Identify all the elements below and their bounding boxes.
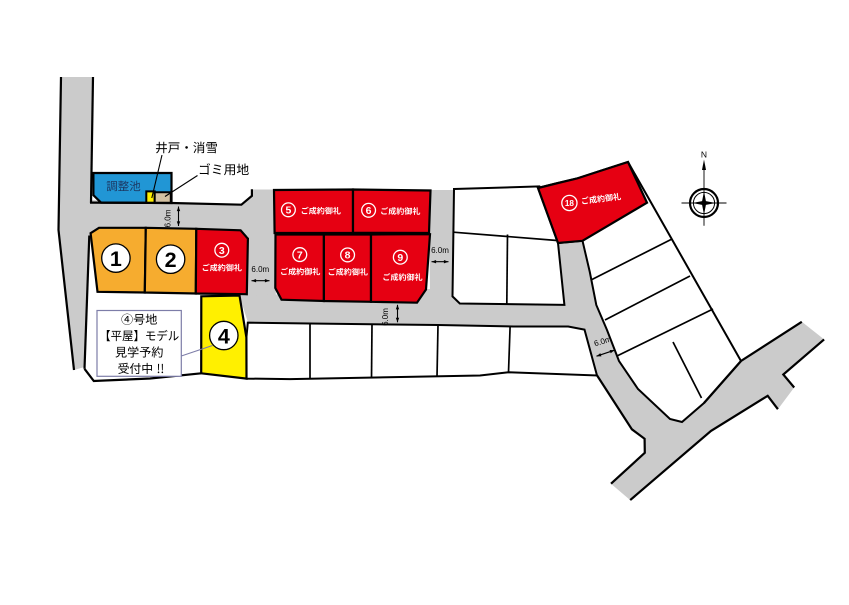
svg-text:6.0m: 6.0m — [164, 209, 173, 227]
svg-text:3: 3 — [219, 245, 225, 257]
svg-text:6.0m: 6.0m — [381, 308, 390, 326]
svg-text:9: 9 — [397, 252, 403, 264]
svg-text:1: 1 — [110, 247, 122, 271]
svg-text:18: 18 — [565, 199, 575, 208]
svg-text:6: 6 — [366, 205, 372, 217]
svg-text:5: 5 — [285, 205, 291, 217]
svg-text:4: 4 — [218, 324, 230, 348]
svg-text:2: 2 — [165, 248, 177, 272]
svg-text:8: 8 — [345, 250, 351, 262]
svg-text:6.0m: 6.0m — [251, 265, 269, 274]
svg-text:N: N — [701, 150, 707, 160]
svg-text:6.0m: 6.0m — [431, 246, 449, 255]
svg-text:7: 7 — [297, 249, 303, 261]
